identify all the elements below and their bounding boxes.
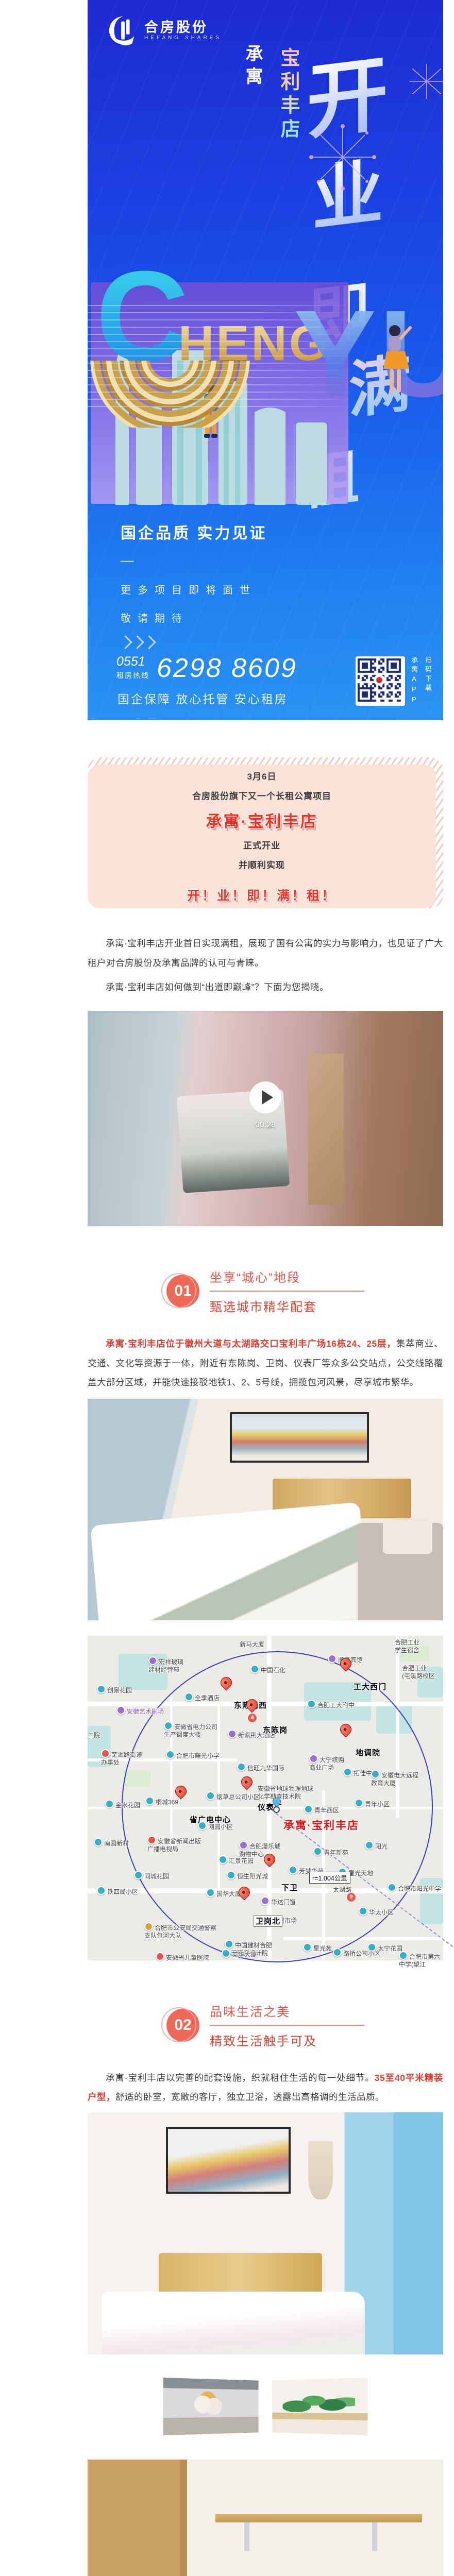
- intro-paragraph-1: 承寓·宝利丰店开业首日实现满租，展现了国有公寓的实力与影响力，也见证了广大租户对…: [88, 934, 443, 973]
- photo-kitchen-dishes: [163, 2378, 259, 2435]
- map-poi-label: 路桥公司小区: [333, 1948, 380, 1958]
- map-center-label: 承寓·宝利丰店: [283, 1817, 359, 1833]
- section-title-line1: 品味生活之美: [210, 2002, 364, 2025]
- map-poi-label: 创景花园: [97, 1685, 132, 1695]
- app-qr-block: 承寓APP 扫码下载: [356, 656, 443, 706]
- hotline-label: 租房热线: [116, 670, 149, 681]
- map-radius-label: r=1.004公里: [309, 1872, 350, 1884]
- map-poi-label: 国华大厦: [206, 1888, 241, 1899]
- map-poi-label: 宏祥玻璃 建材经营部: [148, 1656, 183, 1674]
- video-duration: 00:28: [249, 1121, 281, 1130]
- map-poi-label: 金水花园: [105, 1800, 140, 1810]
- card-open-line: 正式开业: [243, 838, 280, 851]
- map-poi-label: 合肥市阳光中学: [388, 1883, 441, 1893]
- qr-code: [356, 656, 405, 706]
- hotline-slogan: 国企保障 放心托管 安心租房: [117, 689, 288, 707]
- card-slogan: 开！业！即！满！租！: [187, 886, 337, 904]
- photo-pair-row: [88, 2379, 443, 2435]
- banner-slogan: 国企品质 实力见证 — 更多项目即将面世 敬请期待: [121, 520, 267, 647]
- apartment-paragraph: 承寓·宝利丰店以完善的配套设施，织就租住生活的每一处细节。35至40平米精装户型…: [88, 2069, 443, 2107]
- slogan-dash: —: [121, 552, 267, 568]
- play-button[interactable]: [249, 1081, 281, 1113]
- vertical-brand-text: 承寓: [240, 44, 265, 90]
- stripe-lines-decoration: [88, 305, 356, 412]
- card-subtitle: 合房股份旗下又一个长租公寓项目: [192, 789, 331, 802]
- map-poi-label: 安徽电大远程 教育大厦: [371, 1770, 418, 1788]
- bus-route-badge: 4: [247, 1713, 257, 1723]
- map-poi-label: 合肥工大附中: [307, 1700, 355, 1710]
- map-poi-label: 安徽省儿童医院: [156, 1952, 209, 1962]
- map-poi-label: 安徽省新闻出版 广播电视局: [147, 1836, 201, 1854]
- card-date: 3月6日: [247, 769, 277, 782]
- section-number-badge: 01: [166, 1275, 199, 1308]
- hefang-logo-icon: [107, 14, 139, 46]
- photo-desk-area: [88, 2460, 443, 2576]
- map-poi-label: 合肥工业 (屯溪路校区: [402, 1665, 435, 1681]
- intro-paragraph-2: 承寓·宝利丰店如何做到“出道即巅峰”？下面为您揭晓。: [88, 978, 443, 997]
- person-illustration: [376, 324, 412, 401]
- map-poi-label: 阳光: [365, 1841, 388, 1851]
- article-page: 合房股份 HEFANG SHARES 承寓 宝利丰店 开 业 即 满 租: [88, 0, 443, 2576]
- section-title-line2: 精致生活触手可及: [210, 2026, 364, 2049]
- map-pin-label: 省广电中心: [190, 1814, 231, 1825]
- map-poi-label: 合肥市曙光小学: [166, 1750, 220, 1760]
- section-header-01: 01 坐享“城心”地段 甄选城市精华配套: [88, 1267, 443, 1315]
- map-poi-label: 合肥市公安局交通警察 支队包河大队: [144, 1922, 216, 1940]
- photo-plant-shelf: [272, 2378, 367, 2435]
- map-poi-label: 青年西区: [304, 1805, 339, 1815]
- location-map: 创景花园宏祥玻璃 建材经营部全季酒店新马大厦中国石化顺意宾馆合肥工业 学生宿舍合…: [88, 1636, 443, 1960]
- photo-bedroom-1: [88, 1399, 443, 1620]
- map-poi-label: 安徽艺术剧场: [116, 1706, 164, 1716]
- section-title-line1: 坐享“城心”地段: [210, 1267, 364, 1291]
- card-achieve-line: 并顺利实现: [239, 858, 285, 871]
- map-poi-label: 合肥市第六 中学(望江: [399, 1951, 440, 1969]
- map-pin-label: 工大西门: [354, 1681, 386, 1692]
- map-poi-label: 英华大厦: [222, 1949, 257, 1959]
- hotline-area-code: 0551: [116, 655, 149, 668]
- announcement-card: 3月6日 合房股份旗下又一个长租公寓项目 承寓·宝利丰店 正式开业 并顺利实现 …: [88, 757, 443, 908]
- photo-bedroom-2: [88, 2112, 443, 2354]
- slogan-subtitle-1: 更多项目即将面世: [121, 582, 267, 597]
- triple-chevron-icon: [121, 637, 267, 647]
- map-poi-label: 华太小区: [359, 1907, 394, 1917]
- map-poi-label: 汇景花园: [218, 1855, 254, 1866]
- map-poi-label: 中国石化: [250, 1665, 285, 1675]
- map-pin-label: 卫岗北: [254, 1915, 282, 1927]
- map-poi-label: 星光苑: [303, 1943, 332, 1953]
- map-poi-label: 二院: [88, 1732, 100, 1740]
- logo-subtitle: HEFANG SHARES: [144, 35, 222, 41]
- map-poi-label: 新马大厦: [240, 1641, 264, 1649]
- map-poi-label: 信旺九华国际: [237, 1762, 284, 1773]
- hero-banner: 合房股份 HEFANG SHARES 承寓 宝利丰店 开 业 即 满 租: [88, 0, 443, 720]
- map-poi-label: 同城花园: [134, 1871, 169, 1881]
- location-paragraph: 承寓·宝利丰店位于徽州大道与太湖路交口宝利丰广场16栋24、25层，集萃商业、交…: [88, 1334, 443, 1393]
- map-poi-label: 安徽省地球物理地球 化学勘查技术院: [258, 1785, 313, 1801]
- map-pin-label: 地调院: [356, 1747, 380, 1758]
- qr-caption-scan: 扫码下载: [423, 656, 433, 706]
- map-poi-label: 铁四局小区: [97, 1886, 138, 1896]
- section-header-02: 02 品味生活之美 精致生活触手可及: [88, 2002, 443, 2049]
- bus-route-badge: 9: [346, 1892, 356, 1902]
- map-pin-label: 下卫: [281, 1882, 298, 1893]
- map-poi-label: 安徽省电力公司 生产调度大楼: [164, 1721, 217, 1739]
- map-poi-label: 烟草总公司小区: [206, 1791, 260, 1802]
- hotline-number: 6298 8609: [157, 656, 297, 681]
- map-center-base-icon: [273, 1806, 280, 1813]
- brand-logo: 合房股份 HEFANG SHARES: [107, 14, 222, 46]
- logo-title: 合房股份: [144, 20, 222, 36]
- map-poi-label: 恒生阳光城: [227, 1871, 268, 1881]
- map-poi-label: 南园新村: [94, 1838, 129, 1848]
- map-pin-label: 东陈岗: [263, 1724, 288, 1735]
- map-poi-label: 芜湖路街道 办事处: [101, 1749, 142, 1767]
- slogan-title: 国企品质 实力见证: [121, 520, 267, 543]
- map-poi-label: 大宁缤购 商业广场: [309, 1754, 344, 1772]
- section-number-badge: 02: [166, 2009, 199, 2042]
- hotline-block: 0551 租房热线 6298 8609: [116, 655, 297, 681]
- card-store-title: 承寓·宝利丰店: [206, 808, 317, 832]
- firework-icon: [406, 61, 443, 102]
- map-poi-label: 桐城369: [145, 1797, 178, 1807]
- map-poi-label: 华达门窗: [261, 1896, 296, 1907]
- map-poi-label: 青年小区: [355, 1799, 390, 1809]
- map-poi-label: 全季酒店: [184, 1692, 220, 1703]
- slogan-subtitle-2: 敬请期待: [121, 610, 267, 625]
- qr-caption-app: 承寓APP: [409, 656, 419, 706]
- map-poi-label: 合肥工业 学生宿舍: [395, 1639, 419, 1655]
- map-poi-label: 青年新苑: [313, 1847, 348, 1857]
- section-title-line2: 甄选城市精华配套: [210, 1292, 364, 1315]
- room-tour-video: 00:28: [88, 1011, 443, 1226]
- firework-icon: [309, 124, 376, 191]
- vertical-store-text: 宝利丰店: [274, 47, 302, 142]
